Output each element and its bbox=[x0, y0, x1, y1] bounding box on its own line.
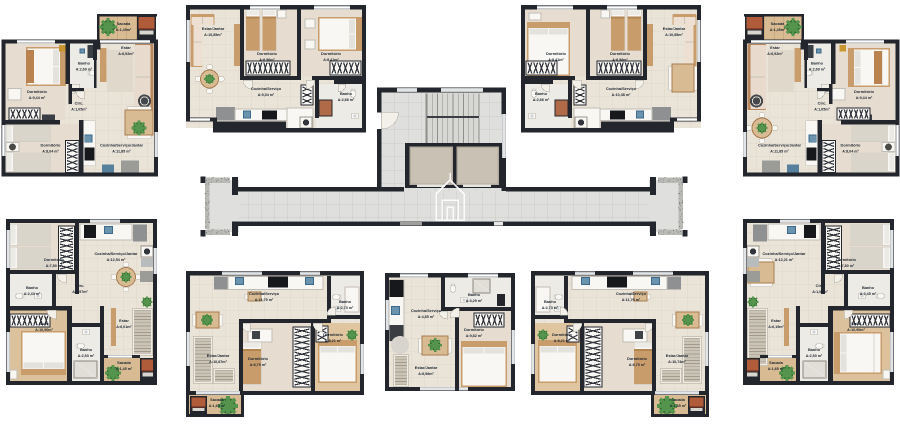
svg-text:Estar/Jantar: Estar/Jantar bbox=[207, 353, 230, 358]
svg-text:A:1,45 m²: A:1,45 m² bbox=[116, 367, 133, 371]
svg-text:A:7,80 m²: A:7,80 m² bbox=[46, 264, 63, 268]
svg-text:A:1,65 m²: A:1,65 m² bbox=[670, 404, 687, 408]
svg-text:Estar/Jantar: Estar/Jantar bbox=[663, 26, 686, 31]
svg-text:Cozinha/Serviço/Jantar: Cozinha/Serviço/Jantar bbox=[762, 251, 806, 256]
svg-text:Dormitório: Dormitório bbox=[627, 356, 648, 361]
svg-text:Sacada: Sacada bbox=[210, 397, 224, 402]
svg-text:Circ.: Circ. bbox=[818, 101, 827, 106]
svg-text:A:2,69 m²: A:2,69 m² bbox=[76, 67, 93, 71]
svg-text:Banho: Banho bbox=[340, 91, 353, 96]
svg-text:A:10,38 m²: A:10,38 m² bbox=[612, 93, 631, 97]
svg-text:Banho: Banho bbox=[808, 347, 821, 352]
svg-text:Suíte: Suíte bbox=[851, 321, 861, 326]
svg-text:A:12,54 m²: A:12,54 m² bbox=[107, 258, 126, 262]
svg-text:Cozinha/Serviço/Jantar: Cozinha/Serviço/Jantar bbox=[758, 143, 802, 148]
svg-text:A:11,79 m²: A:11,79 m² bbox=[255, 298, 274, 302]
svg-text:A:6,79 m²: A:6,79 m² bbox=[629, 363, 646, 367]
svg-text:A:11,75 m²: A:11,75 m² bbox=[622, 298, 641, 302]
svg-text:A:9,44 m²: A:9,44 m² bbox=[29, 96, 46, 100]
svg-text:Dormitório: Dormitório bbox=[610, 51, 631, 56]
svg-text:A:2,73 m²: A:2,73 m² bbox=[542, 306, 559, 310]
svg-text:Estar: Estar bbox=[119, 318, 129, 323]
svg-text:Sacada: Sacada bbox=[771, 21, 785, 26]
svg-text:A:1,05m²: A:1,05m² bbox=[71, 107, 87, 111]
svg-text:A:6,92m²: A:6,92m² bbox=[767, 52, 783, 56]
svg-text:A:1,05m²: A:1,05m² bbox=[814, 107, 830, 111]
svg-text:Cozinha/Serviço: Cozinha/Serviço bbox=[616, 291, 647, 296]
svg-text:A:6,96m²: A:6,96m² bbox=[418, 372, 434, 376]
svg-text:Dormitório: Dormitório bbox=[321, 51, 342, 56]
svg-text:A:1,65 m²: A:1,65 m² bbox=[209, 404, 226, 408]
svg-text:A:10,85m²: A:10,85m² bbox=[665, 33, 683, 37]
svg-text:Banho: Banho bbox=[26, 285, 39, 290]
svg-text:A:4,85 m²: A:4,85 m² bbox=[418, 315, 435, 319]
svg-text:A:8,41m²: A:8,41m² bbox=[323, 58, 339, 62]
svg-text:A:6,01m²: A:6,01m² bbox=[116, 325, 132, 329]
svg-text:A:1,00m²: A:1,00m² bbox=[812, 290, 828, 294]
svg-text:Banho: Banho bbox=[339, 299, 352, 304]
svg-text:A:10,67m²: A:10,67m² bbox=[209, 360, 227, 364]
svg-text:A:10,74m²: A:10,74m² bbox=[668, 360, 686, 364]
svg-text:Estar: Estar bbox=[771, 318, 781, 323]
svg-text:A:3,29 m²: A:3,29 m² bbox=[466, 299, 483, 303]
svg-text:A:2,43 m²: A:2,43 m² bbox=[24, 292, 41, 296]
svg-text:Sacada: Sacada bbox=[769, 360, 783, 365]
svg-text:A:2,69 m²: A:2,69 m² bbox=[809, 67, 826, 71]
svg-text:A:9,82 m²: A:9,82 m² bbox=[466, 334, 483, 338]
svg-text:Sacada: Sacada bbox=[117, 360, 131, 365]
svg-text:A:8,21 m²: A:8,21 m² bbox=[554, 339, 571, 343]
svg-text:Dormitório: Dormitório bbox=[323, 332, 344, 337]
svg-text:A:10,85m²: A:10,85m² bbox=[204, 33, 222, 37]
svg-text:A:12,21 m²: A:12,21 m² bbox=[775, 258, 794, 262]
svg-text:A:10,90m²: A:10,90m² bbox=[847, 328, 865, 332]
svg-text:Sacada: Sacada bbox=[117, 21, 131, 26]
svg-text:A:2,66 m²: A:2,66 m² bbox=[533, 98, 550, 102]
svg-text:Dormitório: Dormitório bbox=[257, 51, 278, 56]
svg-text:A:11,85 m²: A:11,85 m² bbox=[770, 149, 789, 153]
svg-text:A:6,79 m²: A:6,79 m² bbox=[250, 363, 267, 367]
svg-text:Cozinha/Serviço: Cozinha/Serviço bbox=[606, 86, 637, 91]
svg-text:Cozinha/Serviço/Jantar: Cozinha/Serviço/Jantar bbox=[94, 251, 138, 256]
svg-text:Estar/Jantar: Estar/Jantar bbox=[415, 365, 438, 370]
svg-text:Banho: Banho bbox=[544, 299, 557, 304]
svg-text:A:1,45m²: A:1,45m² bbox=[770, 28, 786, 32]
svg-text:A:9,44 m²: A:9,44 m² bbox=[856, 96, 873, 100]
svg-text:Estar/Jantar: Estar/Jantar bbox=[666, 353, 689, 358]
svg-text:A:2,53 m²: A:2,53 m² bbox=[78, 354, 95, 358]
svg-text:A:2,66 m²: A:2,66 m² bbox=[338, 98, 355, 102]
svg-text:A:8,41m²: A:8,41m² bbox=[548, 58, 564, 62]
svg-text:Dormitório: Dormitório bbox=[44, 257, 65, 262]
svg-text:A:2,50 m²: A:2,50 m² bbox=[806, 354, 823, 358]
svg-text:A:9,34 m²: A:9,34 m² bbox=[258, 93, 275, 97]
svg-text:Cozinha/Serviço/Jantar: Cozinha/Serviço/Jantar bbox=[100, 143, 144, 148]
svg-text:A:6,96m²: A:6,96m² bbox=[259, 58, 275, 62]
svg-text:Banho: Banho bbox=[811, 61, 824, 66]
svg-text:A:2,73 m²: A:2,73 m² bbox=[337, 306, 354, 310]
svg-text:Estar: Estar bbox=[121, 45, 131, 50]
svg-text:A:10,90m²: A:10,90m² bbox=[35, 328, 53, 332]
svg-text:A:0,97m²: A:0,97m² bbox=[72, 290, 88, 294]
svg-text:Banho: Banho bbox=[468, 292, 481, 297]
svg-text:Dormitório: Dormitório bbox=[836, 257, 857, 262]
svg-text:Dormitório: Dormitório bbox=[464, 327, 485, 332]
svg-text:A:8,04 m²: A:8,04 m² bbox=[42, 149, 59, 153]
svg-text:Circ.: Circ. bbox=[76, 283, 85, 288]
svg-text:Dormitório: Dormitório bbox=[841, 143, 862, 148]
svg-text:Dormitório: Dormitório bbox=[248, 356, 269, 361]
svg-text:A:7,80 m²: A:7,80 m² bbox=[838, 264, 855, 268]
svg-text:Banho: Banho bbox=[535, 91, 548, 96]
svg-text:Cozinha/Serviço: Cozinha/Serviço bbox=[411, 308, 442, 313]
svg-text:Dormitório: Dormitório bbox=[27, 89, 48, 94]
svg-text:Estar: Estar bbox=[770, 45, 780, 50]
svg-text:Suíte: Suíte bbox=[39, 321, 49, 326]
svg-text:A:6,19m²: A:6,19m² bbox=[768, 325, 784, 329]
svg-text:Dormitório: Dormitório bbox=[41, 143, 62, 148]
svg-text:Sacada: Sacada bbox=[671, 397, 685, 402]
svg-text:A:1,65 m²: A:1,65 m² bbox=[768, 367, 785, 371]
svg-text:A:11,85 m²: A:11,85 m² bbox=[112, 149, 131, 153]
svg-text:Estar/Jantar: Estar/Jantar bbox=[202, 26, 225, 31]
svg-text:A:1,45m²: A:1,45m² bbox=[116, 28, 132, 32]
svg-text:Circ.: Circ. bbox=[816, 283, 825, 288]
svg-text:A:8,04 m²: A:8,04 m² bbox=[842, 149, 859, 153]
svg-text:A:8,21 m²: A:8,21 m² bbox=[325, 339, 342, 343]
svg-text:Banho: Banho bbox=[78, 61, 91, 66]
svg-text:Circ.: Circ. bbox=[75, 101, 84, 106]
svg-text:A:6,96m²: A:6,96m² bbox=[612, 58, 628, 62]
svg-text:Cozinha/Serviço: Cozinha/Serviço bbox=[251, 86, 282, 91]
svg-text:Banho: Banho bbox=[862, 285, 875, 290]
svg-text:A:2,45 m²: A:2,45 m² bbox=[860, 292, 877, 296]
svg-text:Dormitório: Dormitório bbox=[854, 89, 875, 94]
svg-text:Banho: Banho bbox=[80, 347, 93, 352]
svg-text:Dormitório: Dormitório bbox=[546, 51, 567, 56]
svg-text:Cozinha/Serviço: Cozinha/Serviço bbox=[249, 291, 280, 296]
svg-text:Dormitório: Dormitório bbox=[552, 332, 573, 337]
svg-text:A:6,92m²: A:6,92m² bbox=[118, 52, 134, 56]
